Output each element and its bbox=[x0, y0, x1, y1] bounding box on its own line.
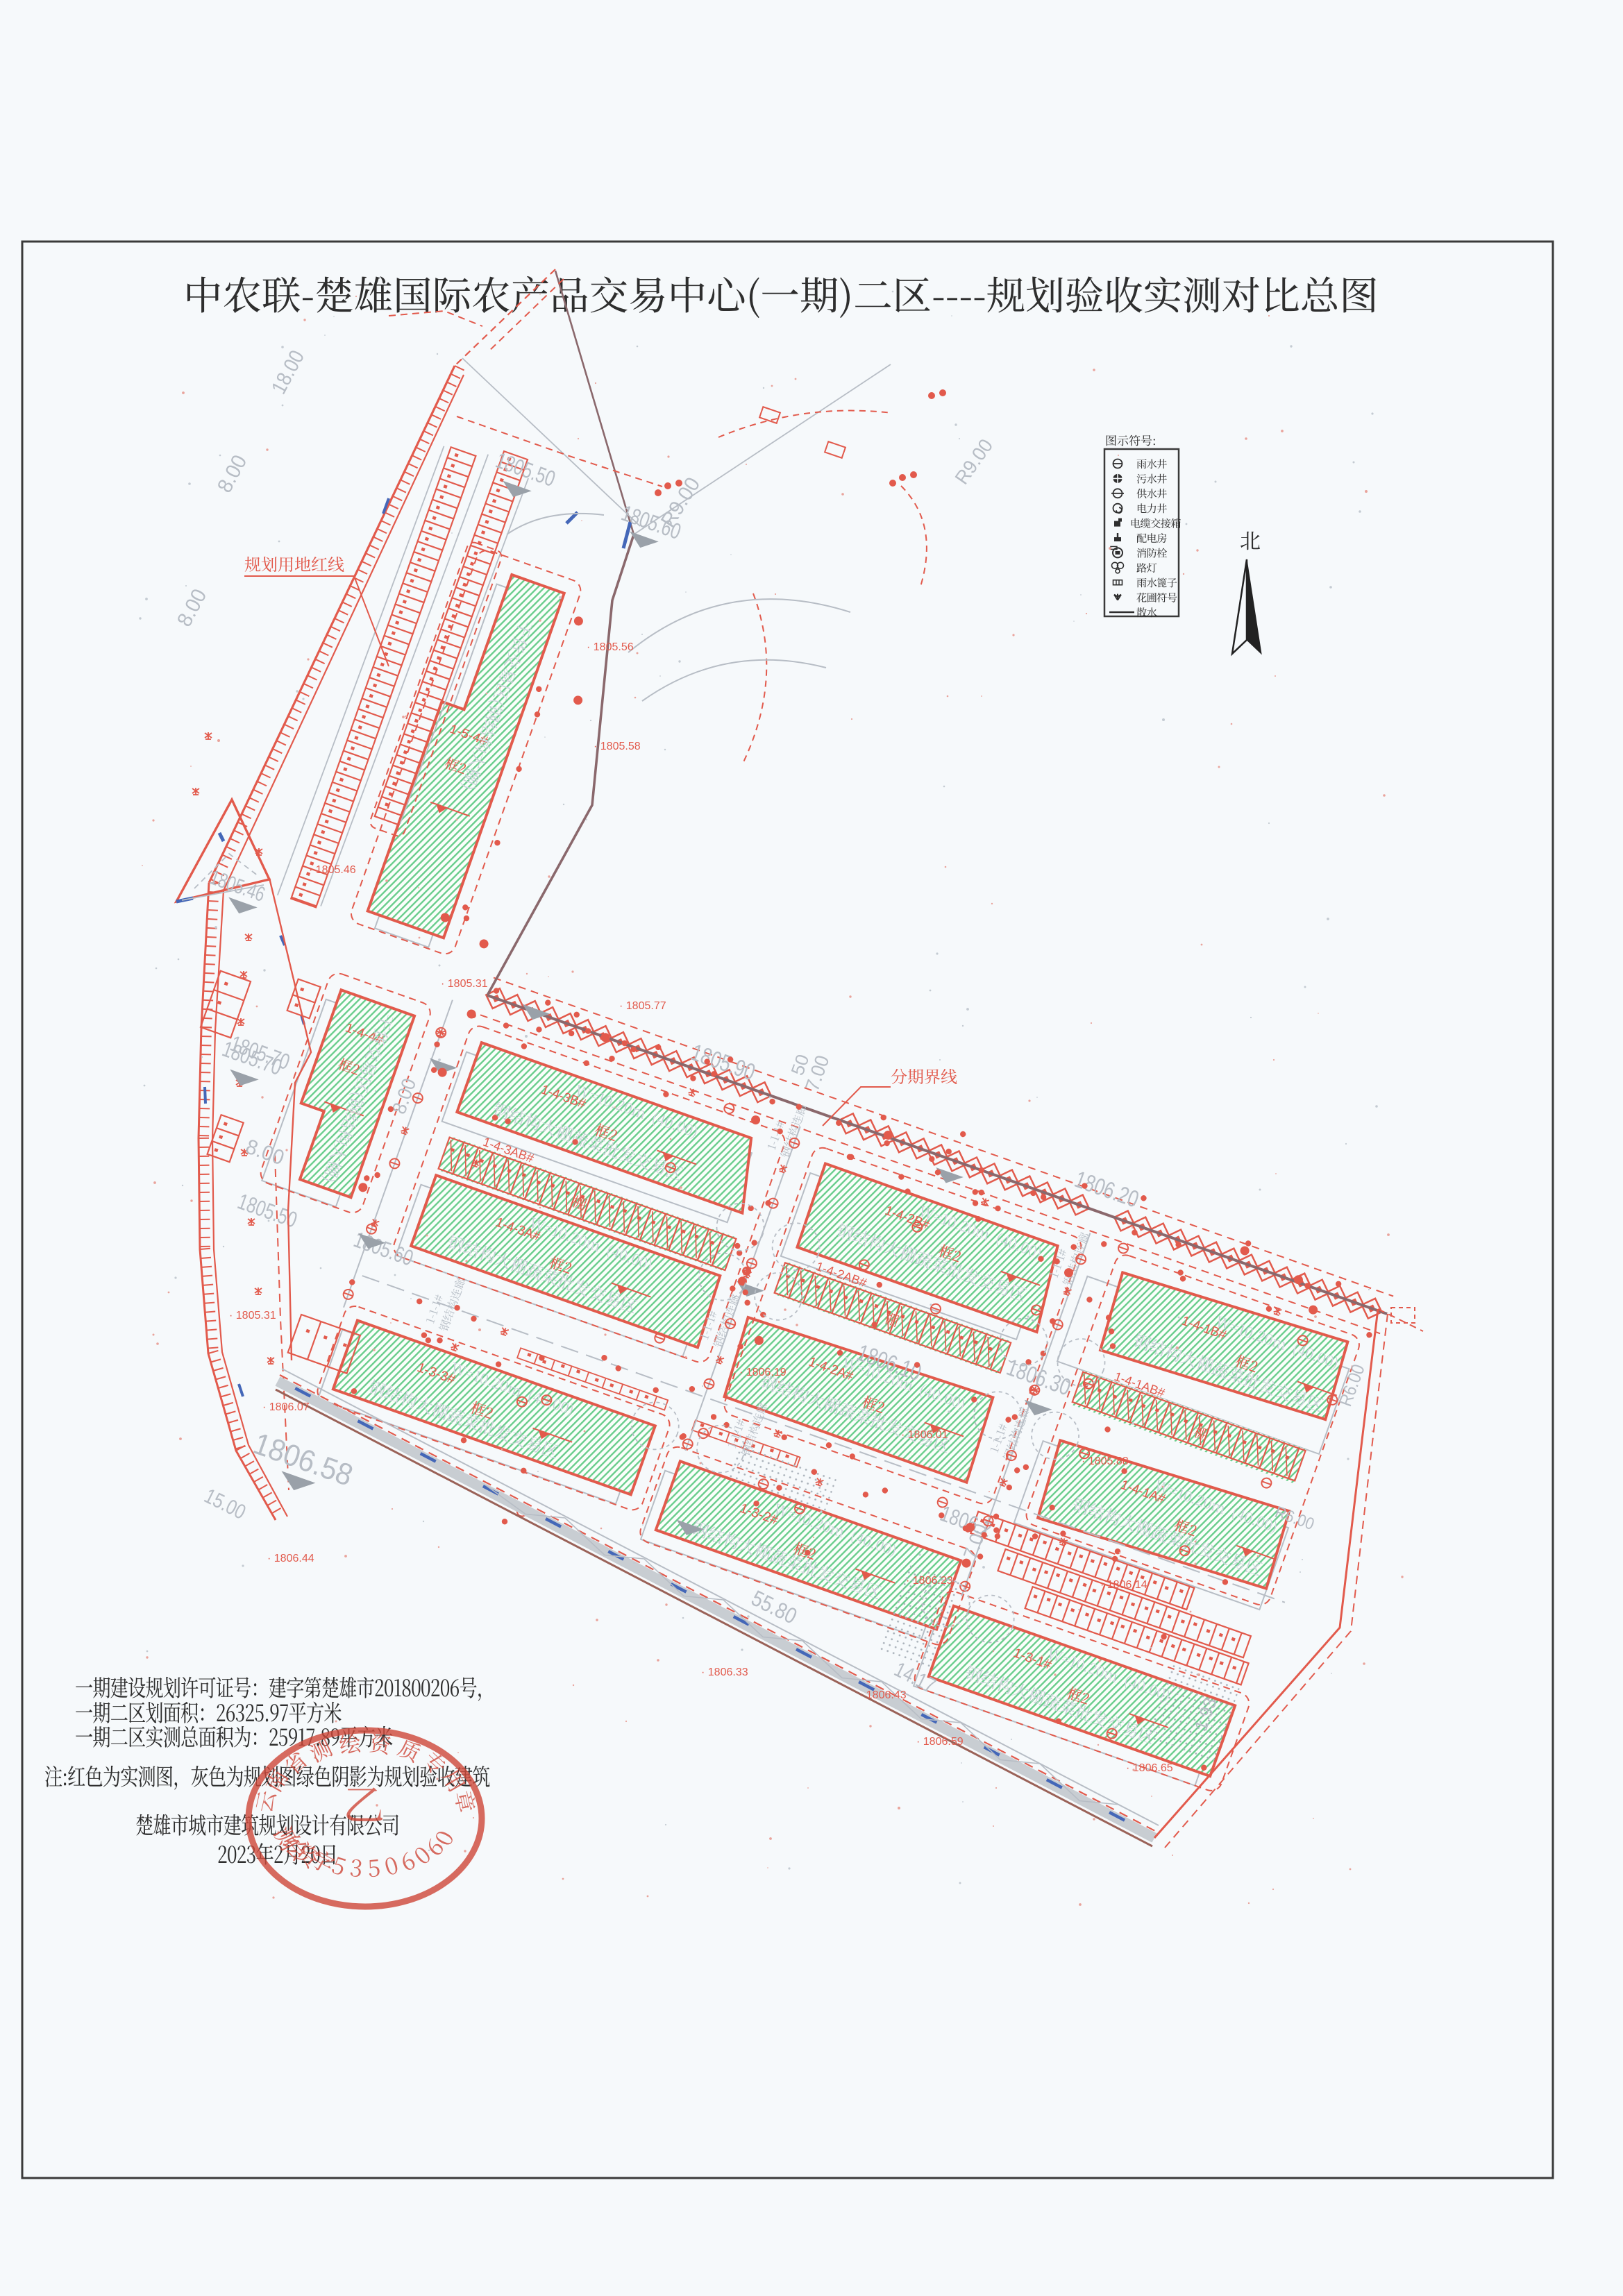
svg-text:· 1805.56: · 1805.56 bbox=[587, 641, 634, 653]
svg-text:· 1806.43: · 1806.43 bbox=[859, 1689, 907, 1701]
svg-text:· 1806.14: · 1806.14 bbox=[1100, 1579, 1147, 1591]
svg-text:· 1805.31: · 1805.31 bbox=[441, 978, 488, 990]
svg-text:· 1806.07: · 1806.07 bbox=[262, 1401, 310, 1413]
svg-text:· 1805.31: · 1805.31 bbox=[229, 1310, 276, 1322]
svg-text:· 1806.59: · 1806.59 bbox=[916, 1736, 964, 1748]
svg-text:· 1805.46: · 1805.46 bbox=[309, 864, 356, 876]
svg-text:· 1806.65: · 1806.65 bbox=[1126, 1762, 1173, 1774]
svg-text:· 1806.19: · 1806.19 bbox=[739, 1367, 787, 1378]
svg-text:· 1806.33: · 1806.33 bbox=[701, 1666, 748, 1678]
svg-text:· 1806.23: · 1806.23 bbox=[906, 1575, 953, 1587]
svg-text:· 1805.88: · 1805.88 bbox=[1082, 1455, 1129, 1467]
svg-text:· 1806.44: · 1806.44 bbox=[267, 1553, 314, 1564]
svg-text:· 1805.58: · 1805.58 bbox=[594, 741, 641, 752]
svg-text:· 1806.01: · 1806.01 bbox=[901, 1429, 948, 1441]
svg-text:· 1805.77: · 1805.77 bbox=[619, 1000, 666, 1012]
